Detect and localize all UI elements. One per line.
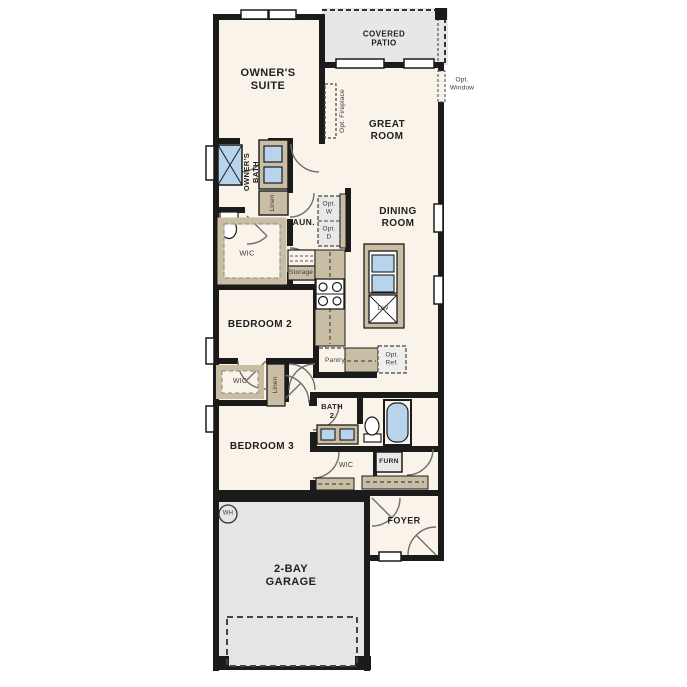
bedroom3-label: BEDROOM 3: [230, 441, 294, 453]
water-heater-label: WH: [223, 510, 233, 517]
opt-dryer-label: Opt. D: [322, 225, 335, 240]
garage-label: 2-BAY GARAGE: [266, 563, 317, 589]
opt-fireplace-box: [325, 84, 336, 138]
opt-window-label: Opt. Window: [450, 76, 474, 91]
bedroom2-wic-label: WIC: [233, 378, 247, 386]
covered-patio-label: COVERED PATIO: [363, 30, 405, 49]
window-bath-left: [206, 146, 214, 180]
great-room-label: GREAT ROOM: [369, 119, 405, 143]
patio-post: [435, 8, 447, 20]
window-dining-2: [434, 276, 443, 304]
window-bedroom2: [206, 338, 214, 364]
hall-linen-label: Linen: [272, 377, 280, 394]
bath2-sink-2: [340, 429, 354, 440]
wall-right-exterior: [438, 62, 444, 561]
wall-owner-right: [319, 14, 325, 144]
owners-wic-label: WIC: [239, 250, 254, 259]
furnace-label: FURN: [379, 458, 399, 466]
owners-sink-1: [264, 146, 282, 162]
wall-closet-bottom: [356, 490, 444, 496]
window-bedroom3: [206, 406, 214, 432]
opt-washer-label: Opt. W: [322, 200, 335, 215]
opt-window-box: [438, 71, 445, 102]
opt-ref-label: Opt. Ref.: [385, 351, 398, 366]
owners-suite-label: OWNER'S SUITE: [241, 67, 296, 93]
wall-bedroom3-right-1: [310, 398, 317, 404]
laundry-label: LAUN.: [287, 217, 315, 227]
patio-slider-door: [336, 59, 384, 68]
wall-bath2-stub: [357, 398, 363, 424]
island-sink-basin-1: [372, 255, 394, 272]
bedroom2-label: BEDROOM 2: [228, 319, 292, 331]
toilet-bath2-bowl: [365, 417, 379, 435]
window-greatroom-top: [404, 59, 434, 68]
window-dining-1: [434, 204, 443, 232]
owners-sink-2: [264, 167, 282, 183]
dining-room-label: DINING ROOM: [379, 206, 416, 230]
window-owner-top-2: [269, 10, 296, 19]
linen-bath-label: Linen: [269, 195, 277, 212]
opt-fireplace-label: Opt. Fireplace: [339, 89, 347, 133]
bath2-label: BATH 2: [321, 403, 343, 421]
storage-label: Storage: [289, 269, 313, 277]
foyer-label: FOYER: [387, 516, 420, 527]
wall-bedroom2-bottom-2: [266, 358, 319, 364]
owners-bath-label: OWNER'S BATH: [243, 153, 261, 191]
tub: [387, 403, 408, 442]
dishwasher-label: DW: [377, 305, 388, 313]
bedroom3-wic-label: WIC: [339, 462, 353, 470]
laundry-counter-strip: [340, 194, 346, 248]
wall-bedroom2-bottom-1: [213, 358, 238, 364]
counter-by-ref: [345, 348, 378, 372]
wall-pantry-bottom: [313, 372, 377, 378]
island-sink-basin-2: [372, 275, 394, 292]
wall-garage-top: [213, 490, 370, 502]
wall-garage-right: [364, 496, 370, 671]
bath2-sink-1: [321, 429, 335, 440]
pantry-label: Pantry: [325, 357, 345, 365]
wall-bath2-top: [310, 392, 444, 398]
window-owner-top-1: [241, 10, 268, 19]
window-foyer: [379, 552, 401, 561]
wall-bedroom2-top: [213, 284, 319, 290]
wall-owner-bottom-1: [213, 138, 240, 144]
floor-plan-canvas: OWNER'S SUITE COVERED PATIO GREAT ROOM D…: [0, 0, 687, 687]
